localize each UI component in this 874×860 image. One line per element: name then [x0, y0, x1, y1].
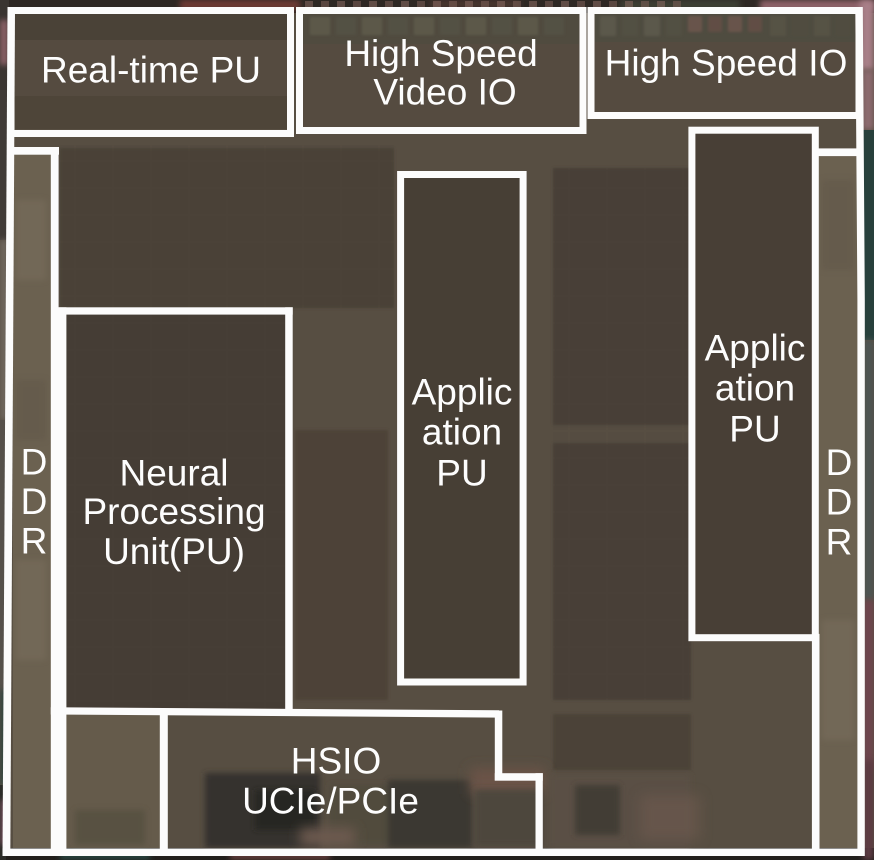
svg-text:ation: ation	[422, 412, 502, 453]
svg-text:R: R	[21, 521, 48, 562]
svg-text:ation: ation	[715, 367, 795, 408]
svg-text:D: D	[21, 481, 48, 522]
svg-text:Applic: Applic	[705, 327, 806, 368]
svg-text:Real-time PU: Real-time PU	[41, 50, 261, 91]
svg-text:Processing: Processing	[82, 491, 265, 532]
svg-text:UCIe/PCIe: UCIe/PCIe	[242, 781, 419, 822]
svg-text:R: R	[826, 522, 853, 563]
svg-text:PU: PU	[436, 453, 487, 494]
svg-text:D: D	[826, 482, 853, 523]
svg-text:High Speed: High Speed	[344, 33, 537, 74]
svg-text:D: D	[21, 442, 48, 483]
svg-text:Neural: Neural	[120, 453, 229, 494]
svg-text:Unit(PU): Unit(PU)	[103, 531, 245, 572]
svg-text:Applic: Applic	[412, 372, 513, 413]
svg-text:HSIO: HSIO	[291, 740, 381, 781]
svg-text:High Speed IO: High Speed IO	[605, 43, 848, 84]
svg-text:Video IO: Video IO	[373, 72, 516, 113]
svg-text:PU: PU	[729, 408, 780, 449]
svg-text:D: D	[826, 442, 853, 483]
